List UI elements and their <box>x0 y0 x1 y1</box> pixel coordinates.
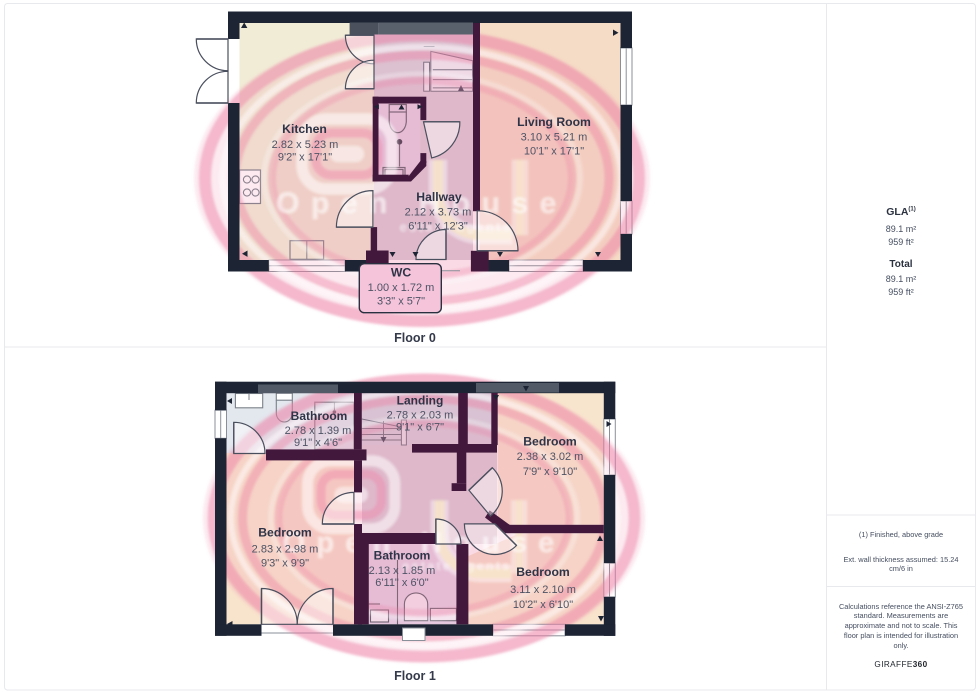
svg-text:3.10 x 5.21 m: 3.10 x 5.21 m <box>521 132 588 144</box>
svg-text:Bedroom: Bedroom <box>523 434 577 448</box>
svg-text:WC: WC <box>391 266 412 280</box>
svg-text:2.78 x 2.03 m: 2.78 x 2.03 m <box>387 409 454 421</box>
svg-text:Bathroom: Bathroom <box>291 409 348 423</box>
svg-text:6'11" x 6'0": 6'11" x 6'0" <box>375 577 428 589</box>
svg-text:6'11" x 12'3": 6'11" x 12'3" <box>408 221 468 233</box>
svg-text:9'1" x 6'7": 9'1" x 6'7" <box>396 421 444 433</box>
svg-text:2.38 x 3.02 m: 2.38 x 3.02 m <box>517 451 584 463</box>
svg-text:2.12 x 3.73 m: 2.12 x 3.73 m <box>405 207 472 219</box>
svg-text:Landing: Landing <box>397 393 444 407</box>
svg-text:1.00 x 1.72 m: 1.00 x 1.72 m <box>368 282 435 294</box>
svg-text:9'2" x 17'1": 9'2" x 17'1" <box>278 152 332 164</box>
svg-text:Hallway: Hallway <box>416 190 462 204</box>
svg-text:2.83 x 2.98 m: 2.83 x 2.98 m <box>252 543 319 555</box>
svg-text:Bedroom: Bedroom <box>516 565 570 579</box>
svg-text:9'3" x 9'9": 9'3" x 9'9" <box>261 558 309 570</box>
svg-text:3'3" x 5'7": 3'3" x 5'7" <box>377 296 425 308</box>
svg-text:10'2" x 6'10": 10'2" x 6'10" <box>513 599 573 611</box>
svg-text:Floor 0: Floor 0 <box>394 331 436 345</box>
svg-text:10'1" x 17'1": 10'1" x 17'1" <box>524 146 584 158</box>
svg-text:Living Room: Living Room <box>517 115 591 129</box>
svg-text:9'1" x 4'6": 9'1" x 4'6" <box>294 437 342 449</box>
svg-text:Bathroom: Bathroom <box>374 548 431 562</box>
svg-text:Bedroom: Bedroom <box>258 525 312 539</box>
svg-text:2.82 x 5.23 m: 2.82 x 5.23 m <box>272 139 339 151</box>
svg-text:3.11 x 2.10 m: 3.11 x 2.10 m <box>510 584 576 596</box>
svg-text:7'9" x 9'10": 7'9" x 9'10" <box>523 466 577 478</box>
svg-text:2.78 x 1.39 m: 2.78 x 1.39 m <box>285 425 352 437</box>
svg-text:2.13 x 1.85 m: 2.13 x 1.85 m <box>369 565 436 577</box>
svg-text:Floor 1: Floor 1 <box>394 669 436 683</box>
svg-text:Kitchen: Kitchen <box>282 122 327 136</box>
